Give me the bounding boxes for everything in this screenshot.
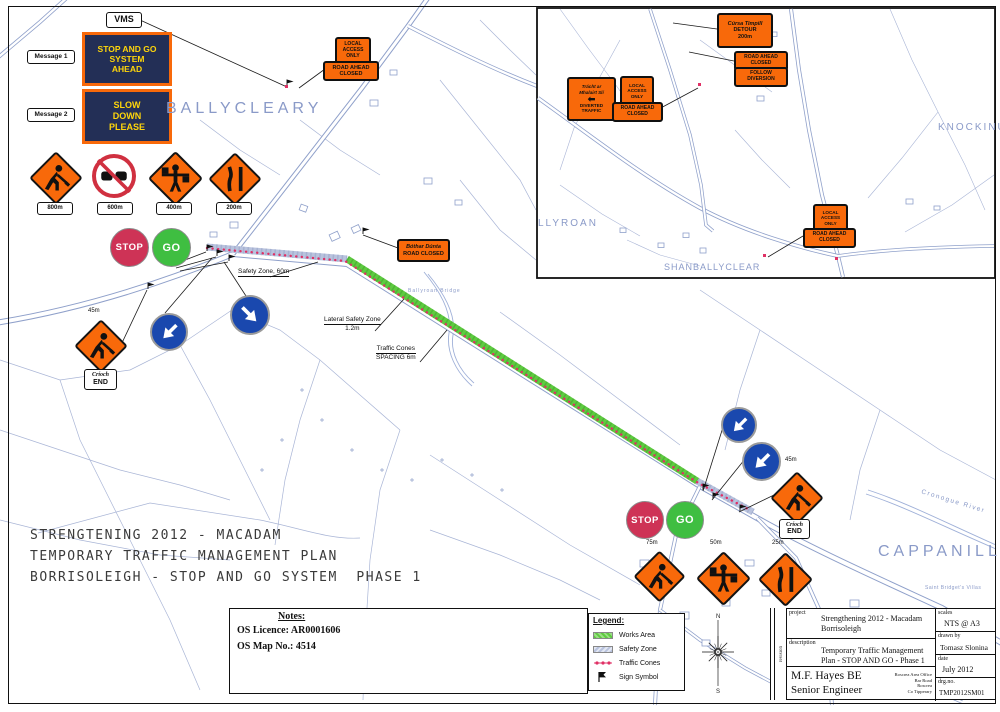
vms-tag-label: VMS [114,15,134,25]
road-narrows-icon [218,162,252,196]
crioch-label: Críoch [786,522,803,529]
project-cell: project Strengthening 2012 - Macadam Bor… [787,609,935,639]
legend-works-row: Works Area [593,630,655,640]
cones-label-line2: SPACING 6m [376,354,416,362]
legend-cones-row: Traffic Cones [593,658,660,668]
revision-label: revision [779,646,784,662]
go-sign-north: GO [152,228,191,267]
distance-800m: 800m [47,205,62,212]
title-block: project Strengthening 2012 - Macadam Bor… [786,608,996,700]
left-arrow-icon: ⬅ [569,95,614,103]
date-cell: date July 2012 [935,655,995,678]
stop-label: STOP [631,515,659,526]
office-line: Roscrea Area Office [895,672,932,678]
place-ballyroan-bridge: Ballyroan Bridge [408,288,461,294]
distance-tag-800m: 800m [37,202,73,215]
keep-left-sign-1 [150,313,188,351]
drg-no-label: drg.no. [938,679,955,685]
no-overtaking-sign-600 [92,154,136,198]
project-line2: Borrisoleigh [821,624,922,634]
notes-map-no: OS Map No.: 4514 [237,641,316,652]
roadworks-icon [643,560,676,593]
crioch-end-tag-left: Críoch END [84,369,117,390]
roadworks-icon [39,161,73,195]
road-ahead-closed-plate-inset-2: ROAD AHEAD CLOSED [612,102,663,122]
go-sign-south: GO [666,501,704,539]
description-line2: Plan - STOP AND GO - Phase 1 [821,656,925,666]
legend-safety-label: Safety Zone [619,646,657,653]
place-ballycleary: BALLYCLEARY [166,100,322,118]
arrow-down-left-icon [748,448,775,475]
plate-line: TRAFFIC [569,108,614,113]
keep-left-sign-2 [721,407,757,443]
notes-licence: OS Licence: AR0001606 [237,625,340,636]
go-label: GO [676,514,694,526]
roadworks-icon [780,481,814,515]
place-llyroan: LLYROAN [538,218,598,229]
plate-line: CLOSED [614,112,661,118]
engineer-name: M.F. Hayes BE [791,670,862,682]
stop-sign-north: STOP [110,228,149,267]
distance-tag-200m: 200m [216,202,252,215]
arrow-down-left-icon [727,413,752,438]
lateral-safety-zone-label: Lateral Safety Zone 1.2m [324,316,381,333]
drg-no-value: TMP2012SM01 [939,689,985,697]
vms1-line1: STOP AND GO [85,44,169,54]
cones-label-line1: Traffic Cones [376,345,416,354]
project-label: project [789,610,806,616]
office-address: Roscrea Area Office Bar Road Roscrea Co … [895,672,932,694]
drawing-title-line2: TEMPORARY TRAFFIC MANAGEMENT PLAN [30,549,338,564]
office-line: Co Tipperary [895,689,932,695]
stop-sign-south: STOP [626,501,664,539]
distance-200m: 200m [226,205,241,212]
lateral-label-line2: 1.2m [324,325,381,333]
legend-works-label: Works Area [619,632,655,639]
go-label: GO [162,242,180,254]
stop-label: STOP [116,242,144,253]
drawing-title-line1: STRENGTENING 2012 - MACADAM [30,528,282,543]
road-narrows-icon [768,562,803,597]
place-saint-bridgets: Saint Bridget's Villas [925,585,981,591]
end-label: END [93,379,108,387]
plate-line: CLOSED [325,71,377,77]
traffic-management-plan: N S VMS Message 1 STOP AND GO SYSTEM AHE… [0,0,1000,712]
place-knockinu: KNOCKINU [938,122,1000,133]
scales-value: NTS @ A3 [944,619,980,629]
flagman-icon [158,161,193,196]
place-cappanill: CAPPANILL [878,543,1000,561]
date-label: date [938,656,948,662]
message2-label: Message 2 [35,111,68,118]
plate-line: DIVERSION [736,77,786,83]
engineer-title: Senior Engineer [791,684,862,696]
lateral-label-line1: Lateral Safety Zone [324,316,381,325]
plate-line: ONLY [337,54,369,60]
drg-no-cell: drg.no. TMP2012SM01 [935,678,995,701]
legend-safety-row: Safety Zone [593,644,657,654]
legend-heading: Legend: [593,616,624,625]
vms1-line3: AHEAD [85,64,169,74]
bothar-dunta-plate: Bóthar Dúnta ROAD CLOSED [397,239,450,262]
plate-line: CLOSED [736,61,786,67]
drawnby-value: Tomasz Slonina [940,643,988,652]
distance-45m-left: 45m [88,308,100,316]
description-label: description [789,640,816,646]
drawnby-cell: drawn by Tomasz Slonina [935,632,995,655]
plate-line: ROAD CLOSED [399,251,448,257]
traffic-cones-swatch [593,659,613,667]
works-area-swatch [593,632,613,639]
distance-25m: 25m [772,540,784,548]
plate-line: ONLY [815,221,846,226]
arrow-down-right-icon [236,301,264,329]
crioch-label: Críoch [92,372,109,379]
engineer-cell: M.F. Hayes BE Senior Engineer Roscrea Ar… [787,667,935,701]
message2-tag: Message 2 [27,108,75,122]
vms-tag: VMS [106,12,142,28]
scales-cell: scales NTS @ A3 [935,609,995,632]
legend-sign-row: Sign Symbol [593,672,658,682]
plate-line: CLOSED [805,238,854,244]
vms1-line2: SYSTEM [85,54,169,64]
date-value: July 2012 [942,665,973,675]
legend-box: Legend: Works Area Safety Zone Traffic C… [588,613,685,691]
safety-zone-label: Safety Zone, 60m [238,268,289,277]
detour-plate: Cúrsa Timpill DETOUR 200m [717,13,773,48]
no-overtaking-icon [96,158,132,194]
traffic-cones-label: Traffic Cones SPACING 6m [376,345,416,362]
distance-75m: 75m [646,540,658,548]
road-ahead-closed-plate-inset-3: ROAD AHEAD CLOSED [803,228,856,248]
plate-line: ONLY [622,94,652,99]
vms2-line1: SLOW [85,100,169,111]
project-line1: Strengthening 2012 - Macadam [821,614,922,624]
message1-label: Message 1 [35,53,68,60]
message1-tag: Message 1 [27,50,75,64]
vms2-line2: DOWN [85,111,169,122]
scales-label: scales [938,610,952,616]
drawing-title-line3: BORRISOLEIGH - STOP AND GO SYSTEM PHASE … [30,570,422,585]
flagman-icon [706,561,741,596]
description-cell: description Temporary Traffic Management… [787,639,935,667]
vms-board-1: STOP AND GO SYSTEM AHEAD [82,32,172,86]
legend-sign-label: Sign Symbol [619,674,658,681]
roadworks-icon [84,329,118,363]
crioch-end-tag-right: Críoch END [779,519,810,539]
arrow-down-left-icon [156,319,183,346]
diverted-traffic-plate: Trácht ar Mhalairt Slí ⬅ DIVERTED TRAFFI… [567,77,616,121]
notes-box: Notes: OS Licence: AR0001606 OS Map No.:… [229,608,588,694]
sign-symbol-swatch [593,671,613,683]
end-label: END [787,528,802,536]
safety-zone-swatch [593,646,613,653]
distance-45m-right: 45m [785,457,797,465]
drawnby-label: drawn by [938,633,961,639]
legend-cones-label: Traffic Cones [619,660,660,667]
distance-tag-600m: 600m [97,202,133,215]
notes-heading: Notes: [278,611,305,622]
follow-diversion-plate: FOLLOW DIVERSION [734,67,788,87]
project-value: Strengthening 2012 - Macadam Borrisoleig… [821,614,922,634]
distance-400m: 400m [166,205,181,212]
keep-right-sign-1 [230,295,270,335]
vms2-line3: PLEASE [85,122,169,133]
distance-tag-400m: 400m [156,202,192,215]
description-value: Temporary Traffic Management Plan - STOP… [821,646,925,666]
vms-board-2: SLOW DOWN PLEASE [82,89,172,144]
road-ahead-closed-plate-top: ROAD AHEAD CLOSED [323,61,379,81]
place-shanballycleary: SHANBALLYCLEAR [664,262,760,272]
keep-left-sign-3 [742,442,781,481]
distance-50m: 50m [710,540,722,548]
description-line1: Temporary Traffic Management [821,646,925,656]
distance-600m: 600m [107,205,122,212]
plate-line: 200m [719,34,771,40]
